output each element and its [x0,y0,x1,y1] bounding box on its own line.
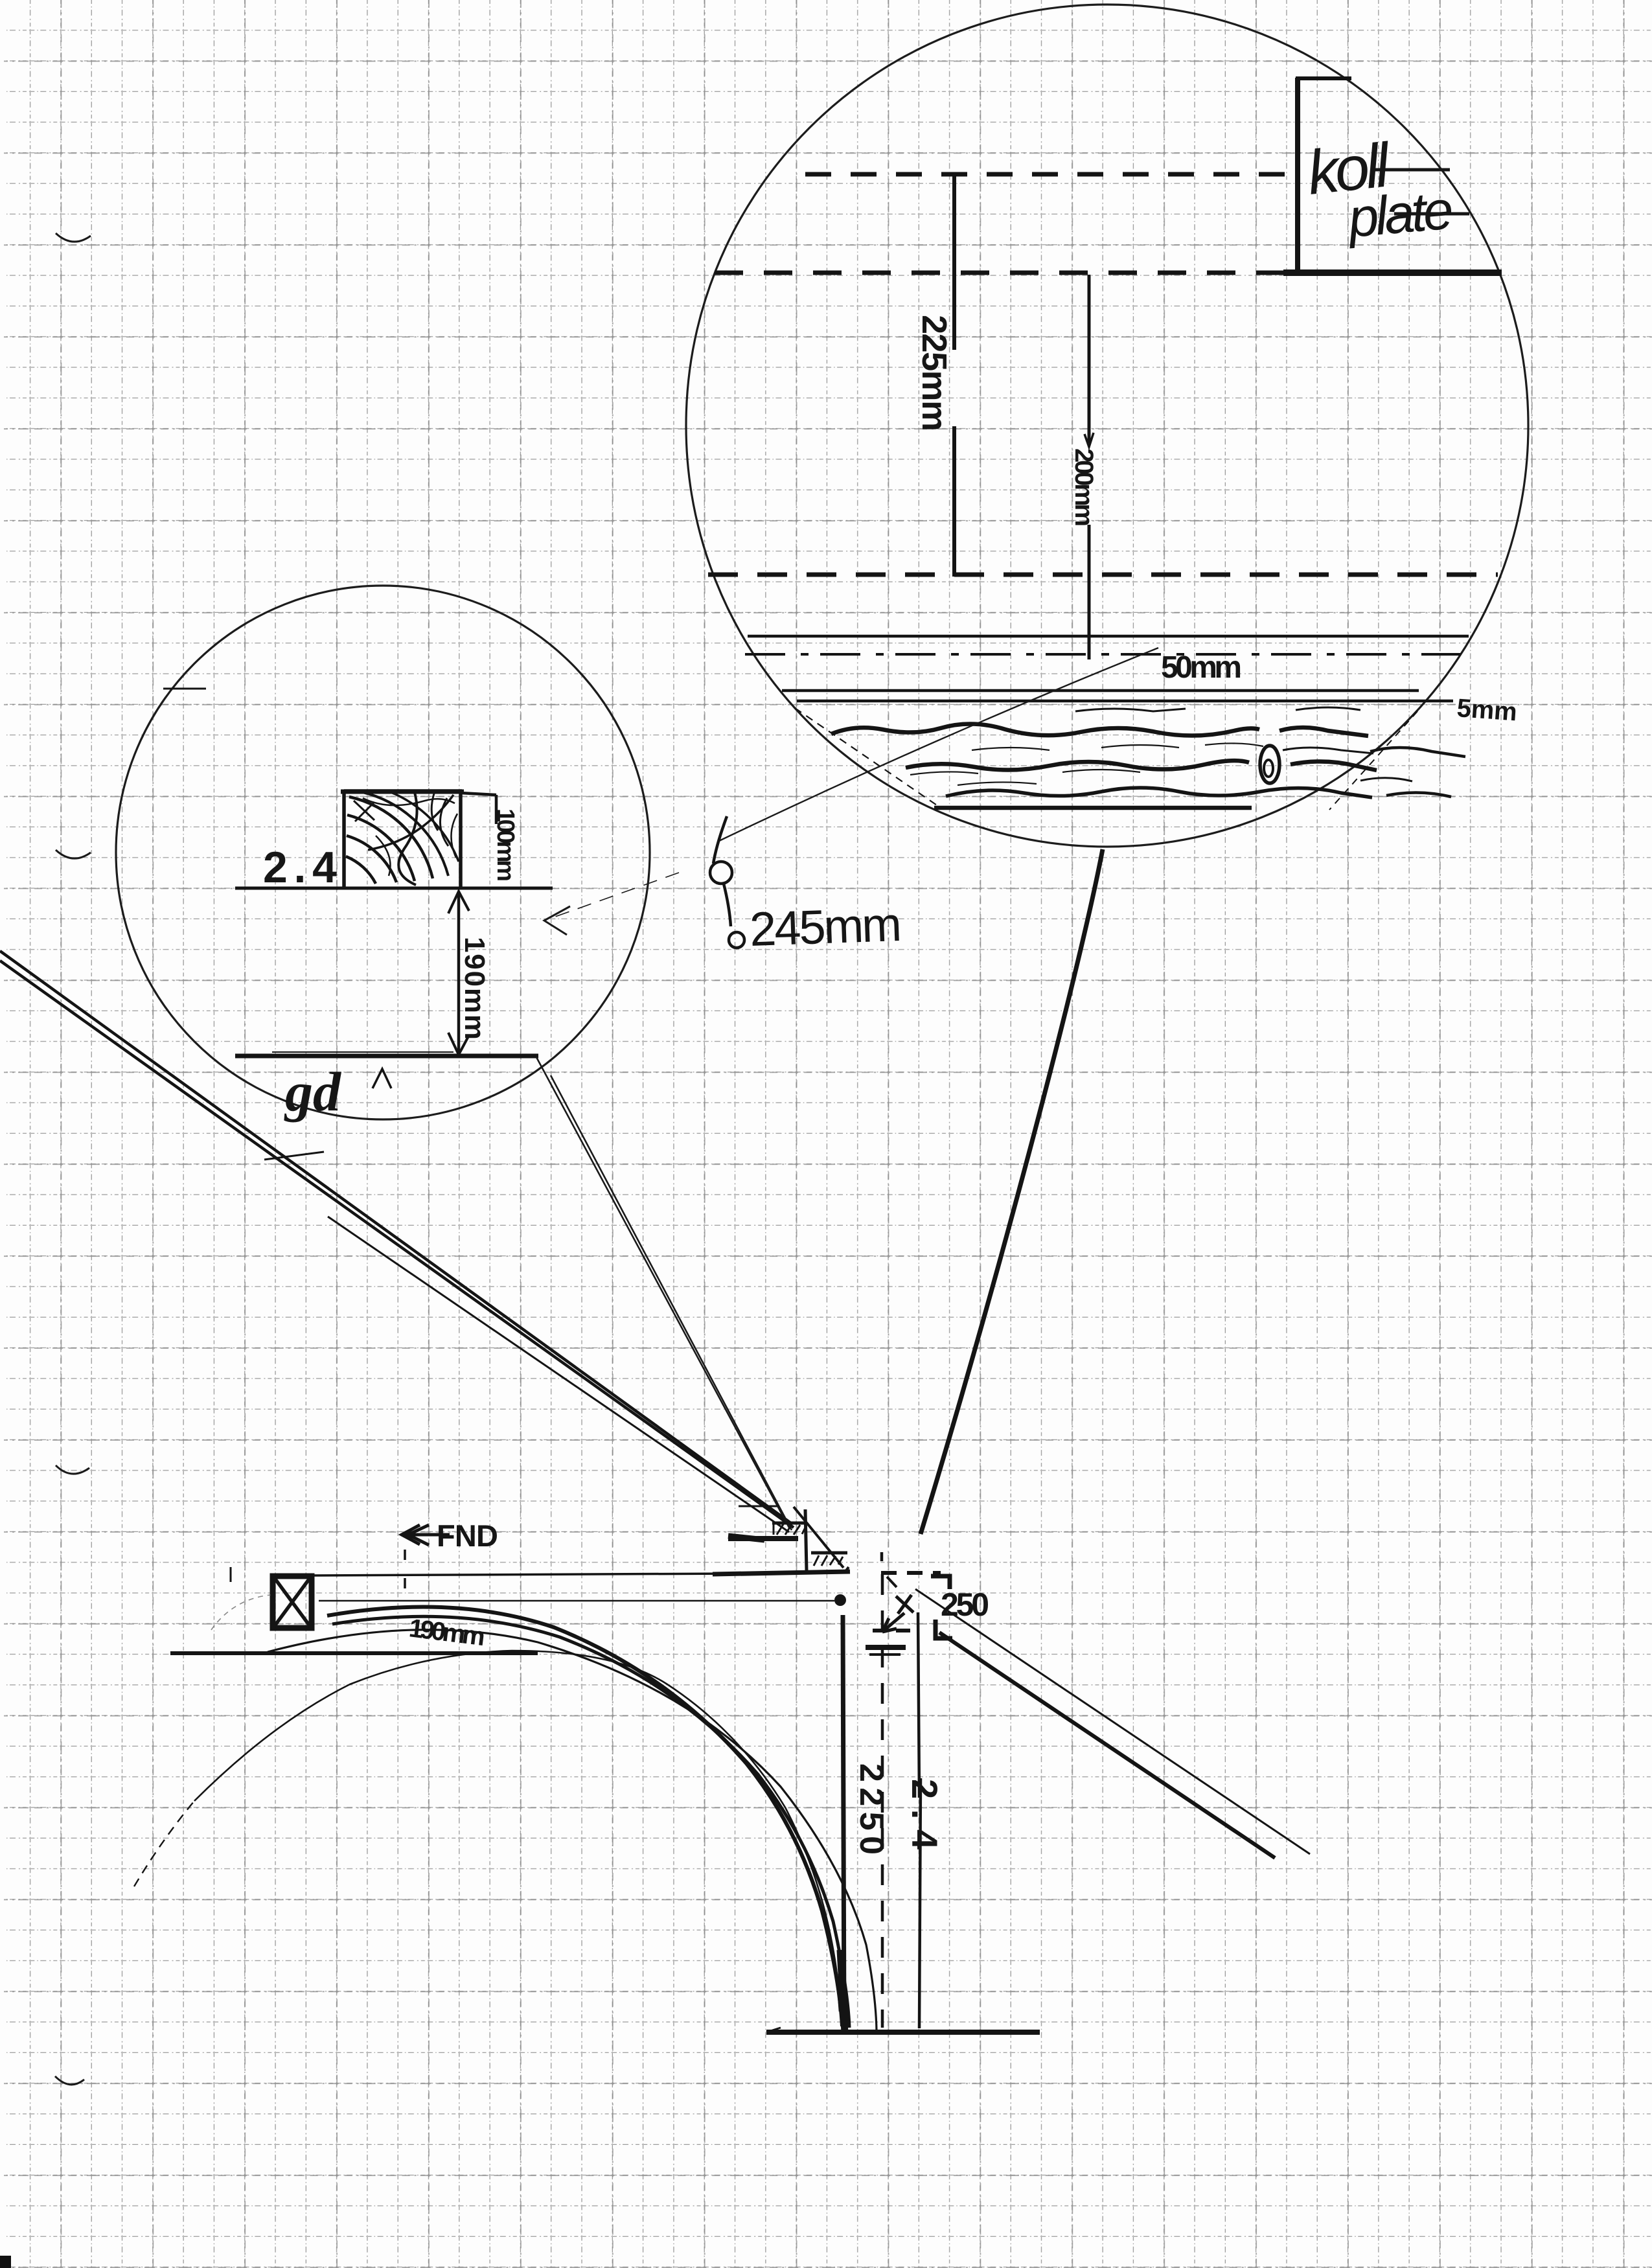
svg-text:5mm: 5mm [1456,694,1517,726]
svg-text:gd: gd [284,1060,342,1123]
svg-text:200mm: 200mm [1070,448,1098,526]
svg-text:250: 250 [941,1586,989,1623]
svg-text:2.4: 2.4 [904,1779,945,1850]
svg-text:245mm: 245mm [749,897,901,956]
svg-text:225mm: 225mm [915,315,954,430]
svg-text:2.4: 2.4 [263,843,338,892]
svg-text:100mm: 100mm [492,808,519,881]
svg-text:FND: FND [437,1518,498,1553]
svg-text:50mm: 50mm [1161,650,1241,685]
